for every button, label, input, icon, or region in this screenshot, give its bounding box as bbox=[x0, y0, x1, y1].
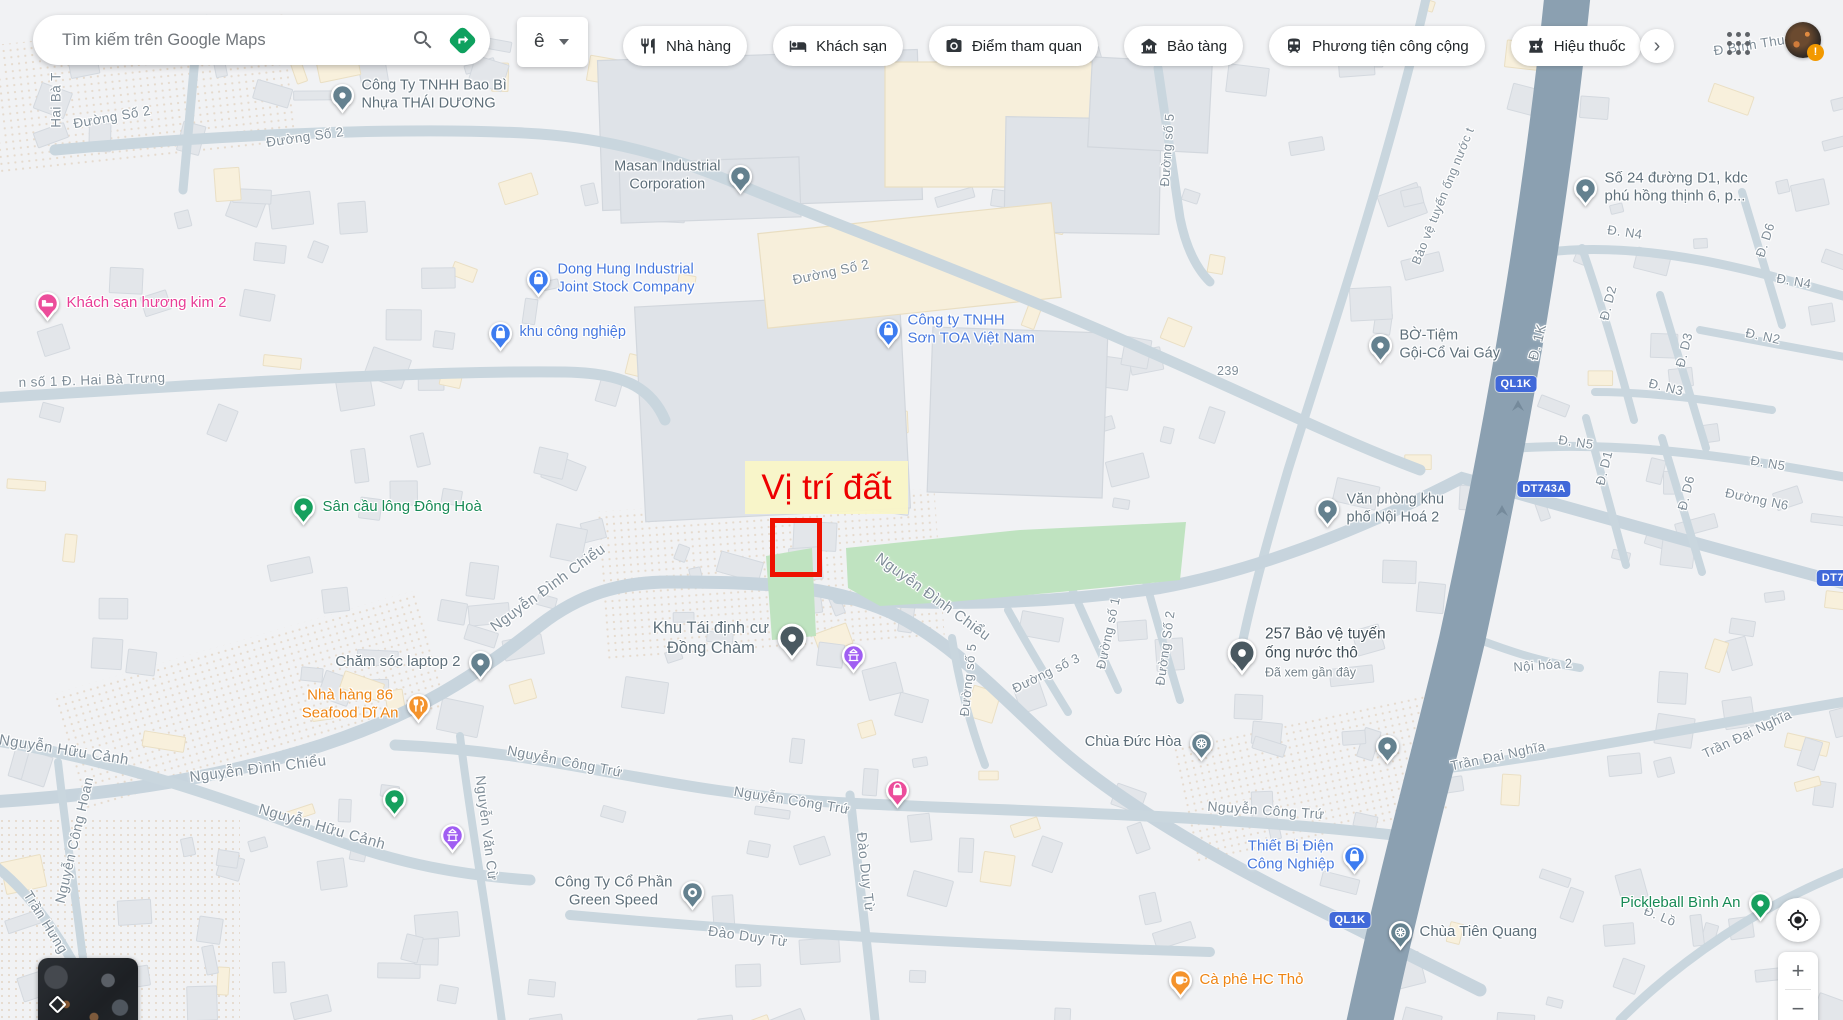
chip-label: Nhà hàng bbox=[666, 38, 731, 55]
chip-label: Hiệu thuốc bbox=[1554, 38, 1626, 55]
poi-pin-icon bbox=[524, 265, 553, 306]
poi-label: 257 Bảo vệ tuyếnống nước thôĐã xem gần đ… bbox=[1265, 625, 1386, 680]
land-plot-annotation-rect bbox=[770, 518, 822, 577]
poi-label: Pickleball Bình An bbox=[1620, 894, 1740, 912]
chevron-down-icon bbox=[559, 39, 569, 45]
chip-label: Điểm tham quan bbox=[972, 38, 1082, 55]
avatar[interactable]: ! bbox=[1785, 22, 1821, 58]
restaurant-icon bbox=[639, 37, 657, 55]
street-label: 239 bbox=[1217, 364, 1239, 378]
poi-label: Công ty TNHHSơn TOA Việt Nam bbox=[908, 312, 1035, 349]
chip-pharmacies[interactable]: Hiệu thuốc bbox=[1511, 26, 1642, 66]
poi-label: Công Ty TNHH Bao BìNhựa THÁI DƯƠNG bbox=[362, 77, 507, 112]
poi-label: Khu Tái định cưĐồng Chàm bbox=[653, 618, 769, 658]
notification-badge: ! bbox=[1807, 44, 1824, 61]
search-icon[interactable] bbox=[411, 28, 435, 52]
transit-icon bbox=[1285, 37, 1303, 55]
poi-pin-icon bbox=[380, 785, 409, 826]
road-shield: DT74 bbox=[1817, 570, 1843, 586]
poi-label: khu công nghiệp bbox=[520, 324, 626, 342]
category-chip-row: Nhà hàngKhách sạnĐiểm tham quanBảo tàngP… bbox=[623, 26, 1641, 66]
poi-label: Khách sạn hương kim 2 bbox=[67, 294, 227, 312]
poi-pin-icon bbox=[1746, 889, 1775, 930]
street-label: Hai Bà T bbox=[49, 72, 64, 127]
poi-pin-icon bbox=[1166, 966, 1195, 1007]
poi-pin-icon bbox=[774, 620, 810, 670]
poi-pin-icon bbox=[1224, 635, 1260, 685]
poi-pin-icon bbox=[33, 289, 62, 330]
poi-label: Công Ty Cổ PhầnGreen Speed bbox=[554, 874, 672, 911]
poi-pin-icon bbox=[726, 162, 755, 203]
directions-icon[interactable] bbox=[449, 27, 476, 54]
zoom-in-button[interactable]: + bbox=[1778, 952, 1818, 989]
chip-label: Phương tiện công cộng bbox=[1312, 38, 1469, 55]
chip-restaurants[interactable]: Nhà hàng bbox=[623, 26, 747, 66]
chip-transit[interactable]: Phương tiện công cộng bbox=[1269, 26, 1485, 66]
poi-pin-icon bbox=[466, 648, 495, 689]
poi-pin-icon bbox=[328, 81, 357, 122]
my-location-icon bbox=[1787, 909, 1809, 931]
road-shield: QL1K bbox=[1496, 376, 1537, 392]
poi-label: Cà phê HC Thỏ bbox=[1200, 971, 1304, 989]
poi-pin-icon bbox=[883, 776, 912, 817]
poi-label: Chăm sóc laptop 2 bbox=[335, 653, 460, 671]
zoom-controls: + − bbox=[1778, 952, 1818, 1020]
camera-icon bbox=[945, 37, 963, 55]
apps-grid-icon[interactable] bbox=[1727, 32, 1753, 58]
poi-pin-icon bbox=[839, 641, 868, 682]
satellite-layer-toggle[interactable] bbox=[38, 958, 138, 1020]
poi-pin-icon bbox=[874, 316, 903, 357]
poi-label: Masan IndustrialCorporation bbox=[614, 158, 720, 193]
poi-label: Thiết Bị ĐiệnCông Nghiệp bbox=[1247, 838, 1335, 875]
chip-museums[interactable]: Bảo tàng bbox=[1124, 26, 1243, 66]
search-input[interactable] bbox=[60, 30, 402, 51]
poi-pin-icon bbox=[1373, 732, 1402, 773]
poi-pin-icon bbox=[678, 878, 707, 919]
poi-label: Chùa Đức Hòa bbox=[1085, 734, 1182, 752]
more-categories-button[interactable]: › bbox=[1640, 29, 1674, 63]
land-plot-annotation-label: Vị trí đất bbox=[745, 461, 908, 514]
google-maps-app: Hai Bà TĐường Số 2Đường Số 2Đường Số 2Đư… bbox=[0, 0, 1843, 1020]
poi-label: BỜ-TiệmGội-Cổ Vai Gáy bbox=[1400, 327, 1500, 362]
poi-label: Sân cầu lông Đông Hoà bbox=[323, 498, 482, 516]
poi-label: Số 24 đường D1, kdcphú hồng thịnh 6, p..… bbox=[1605, 170, 1748, 207]
poi-pin-icon bbox=[438, 821, 467, 862]
chip-attractions[interactable]: Điểm tham quan bbox=[929, 26, 1098, 66]
poi-pin-icon bbox=[1571, 174, 1600, 215]
road-shield: QL1K bbox=[1330, 912, 1371, 928]
search-bar bbox=[33, 15, 490, 65]
museum-icon bbox=[1140, 37, 1158, 55]
map-basemap bbox=[0, 0, 1843, 1020]
poi-pin-icon bbox=[1340, 842, 1369, 883]
hotel-icon bbox=[789, 37, 807, 55]
layers-diamond-icon bbox=[48, 995, 66, 1013]
poi-pin-icon bbox=[1366, 331, 1395, 372]
pharmacy-icon bbox=[1527, 37, 1545, 55]
poi-label: Nhà hàng 86Seafood Dĩ An bbox=[302, 687, 399, 724]
chip-hotels[interactable]: Khách sạn bbox=[773, 26, 903, 66]
map-canvas[interactable]: Hai Bà TĐường Số 2Đường Số 2Đường Số 2Đư… bbox=[0, 0, 1843, 1020]
poi-label: Văn phòng khuphố Nội Hoá 2 bbox=[1347, 491, 1445, 526]
my-location-button[interactable] bbox=[1776, 898, 1820, 942]
ime-selector[interactable]: ê bbox=[517, 17, 588, 67]
chip-label: Bảo tàng bbox=[1167, 38, 1227, 55]
poi-pin-icon bbox=[404, 691, 433, 732]
poi-pin-icon bbox=[289, 493, 318, 534]
zoom-out-button[interactable]: − bbox=[1778, 990, 1818, 1020]
chip-label: Khách sạn bbox=[816, 38, 887, 55]
poi-pin-icon bbox=[1313, 495, 1342, 536]
poi-label: Dong Hung IndustrialJoint Stock Company bbox=[558, 261, 695, 296]
poi-pin-icon bbox=[1187, 729, 1216, 770]
road-shield: DT743A bbox=[1517, 481, 1570, 497]
ime-label: ê bbox=[534, 31, 545, 53]
poi-pin-icon bbox=[1386, 918, 1415, 959]
poi-label: Chùa Tiên Quang bbox=[1420, 923, 1538, 941]
poi-pin-icon bbox=[486, 319, 515, 360]
